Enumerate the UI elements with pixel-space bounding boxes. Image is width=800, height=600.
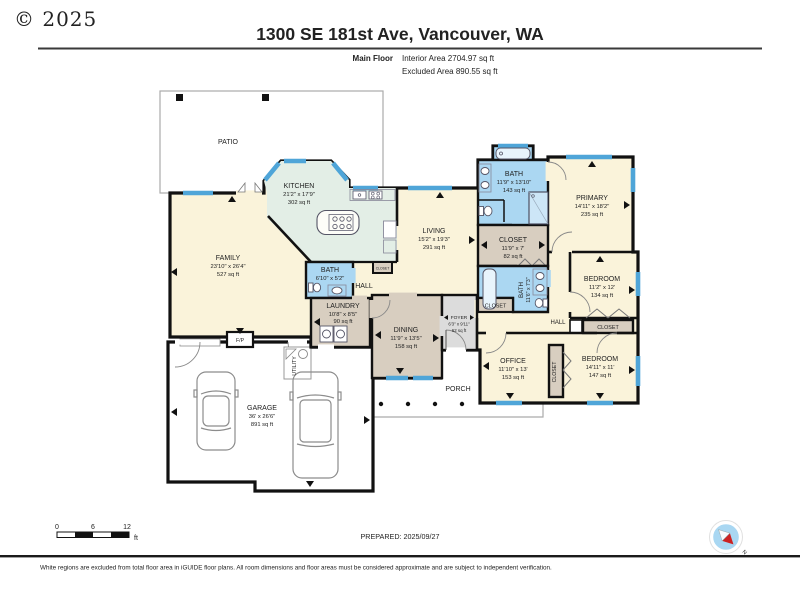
kitchen-dims: 21'2" x 17'9" xyxy=(283,192,315,198)
primary-closet-area: 82 sq ft xyxy=(503,254,522,260)
foyer-area: 62 sq ft xyxy=(452,328,467,333)
foyer-dims: 6'3" x 9'11" xyxy=(448,322,470,327)
hallbath-closet-label: CLOSET xyxy=(485,304,507,310)
bedroom2-dims: 14'11" x 11' xyxy=(586,365,615,371)
patio-post xyxy=(176,94,183,101)
primary-closet-label: CLOSET xyxy=(499,237,528,244)
hall-left-label: HALL xyxy=(355,283,373,290)
office-dims: 11'10" x 13' xyxy=(498,367,527,373)
shower-icon xyxy=(529,192,548,224)
water-heater-icon xyxy=(299,350,308,359)
half-bath-dims: 6'10" x 5'2" xyxy=(316,276,345,282)
patio-post xyxy=(262,94,269,101)
compass-icon: N xyxy=(710,521,748,557)
garage-dims: 36' x 26'6" xyxy=(249,414,276,420)
bedroom1-dims: 11'2" x 12' xyxy=(589,285,615,291)
family-dims: 23'10" x 26'4" xyxy=(210,264,245,270)
furnace-closet xyxy=(570,320,582,333)
disclaimer-text: White regions are excluded from total fl… xyxy=(40,565,552,572)
kitchen-island-icon xyxy=(317,211,359,235)
prepared-date-label: PREPARED: 2025/09/27 xyxy=(361,532,440,541)
scale-tick-12: 12 xyxy=(123,524,131,531)
living-label: LIVING xyxy=(423,228,446,235)
scale-tick-6: 6 xyxy=(91,524,95,531)
primary-label: PRIMARY xyxy=(576,195,608,202)
interior-area-label: Interior Area 2704.97 sq ft xyxy=(402,54,495,63)
utility-label: UTILITY xyxy=(292,356,298,376)
living-area: 291 sq ft xyxy=(423,245,446,251)
toilet-icon xyxy=(479,206,492,216)
scale-bar: 0 6 12 ft xyxy=(55,524,138,542)
bedroom1-label: BEDROOM xyxy=(584,276,620,283)
bathtub-icon xyxy=(496,148,530,159)
fridge-icon xyxy=(384,221,397,238)
kitchen-area: 302 sq ft xyxy=(288,200,311,206)
bedroom2-label: BEDROOM xyxy=(582,356,618,363)
family-area: 527 sq ft xyxy=(217,272,240,278)
hall-right-label: HALL xyxy=(550,320,566,326)
copyright-watermark: © 2025 xyxy=(14,7,97,31)
scale-unit-label: ft xyxy=(134,535,138,542)
bedroom2-area: 147 sq ft xyxy=(589,373,612,379)
footer-divider xyxy=(0,555,800,557)
primary-bath-dims: 11'9" x 13'10" xyxy=(497,180,532,186)
office-label: OFFICE xyxy=(500,358,526,365)
laundry-label: LAUNDRY xyxy=(326,303,360,310)
floor-label: Main Floor xyxy=(353,54,393,63)
living-dims: 15'2" x 19'3" xyxy=(418,237,450,243)
dining-dims: 11'9" x 13'5" xyxy=(390,336,421,342)
dining-area: 158 sq ft xyxy=(395,344,418,350)
family-label: FAMILY xyxy=(216,255,241,262)
excluded-area-label: Excluded Area 890.55 sq ft xyxy=(402,67,498,76)
dining-label: DINING xyxy=(394,327,419,334)
bedroom2-closet-label: CLOSET xyxy=(552,361,558,383)
laundry-area: 90 sq ft xyxy=(333,319,352,325)
patio-label: PATIO xyxy=(218,139,239,146)
floor-plan-svg: © 2025 1300 SE 181st Ave, Vancouver, WA … xyxy=(0,0,800,600)
primary-closet-dims: 11'9" x 7' xyxy=(502,246,525,252)
page-title: 1300 SE 181st Ave, Vancouver, WA xyxy=(256,24,544,44)
fireplace-label: F/P xyxy=(236,338,245,344)
half-bath-label: BATH xyxy=(321,267,339,274)
hall-bath-label: BATH xyxy=(518,282,525,298)
floor-plan-page: © 2025 1300 SE 181st Ave, Vancouver, WA … xyxy=(0,0,800,600)
kitchen-label: KITCHEN xyxy=(284,183,315,190)
primary-bath-area: 143 sq ft xyxy=(503,188,526,194)
toilet-icon xyxy=(535,299,547,308)
primary-area: 235 sq ft xyxy=(581,212,604,218)
pantry-closet-label: CLOSET xyxy=(376,267,390,271)
foyer-label: FOYER xyxy=(451,315,468,321)
laundry-dims: 10'8" x 8'5" xyxy=(329,312,358,318)
scale-tick-0: 0 xyxy=(55,524,59,531)
primary-bath-label: BATH xyxy=(505,171,523,178)
garage-label: GARAGE xyxy=(247,405,277,412)
bedroom1-closet-label: CLOSET xyxy=(597,325,619,331)
garage-area: 891 sq ft xyxy=(251,422,274,428)
porch-label: PORCH xyxy=(445,386,470,393)
toilet-icon xyxy=(309,283,321,292)
title-divider xyxy=(38,48,762,50)
bedroom1-area: 134 sq ft xyxy=(591,293,614,299)
primary-dims: 14'11" x 18'2" xyxy=(575,204,610,210)
hall-bath-dims: 11'6" x 7'3" xyxy=(526,277,532,302)
office-area: 153 sq ft xyxy=(502,375,525,381)
